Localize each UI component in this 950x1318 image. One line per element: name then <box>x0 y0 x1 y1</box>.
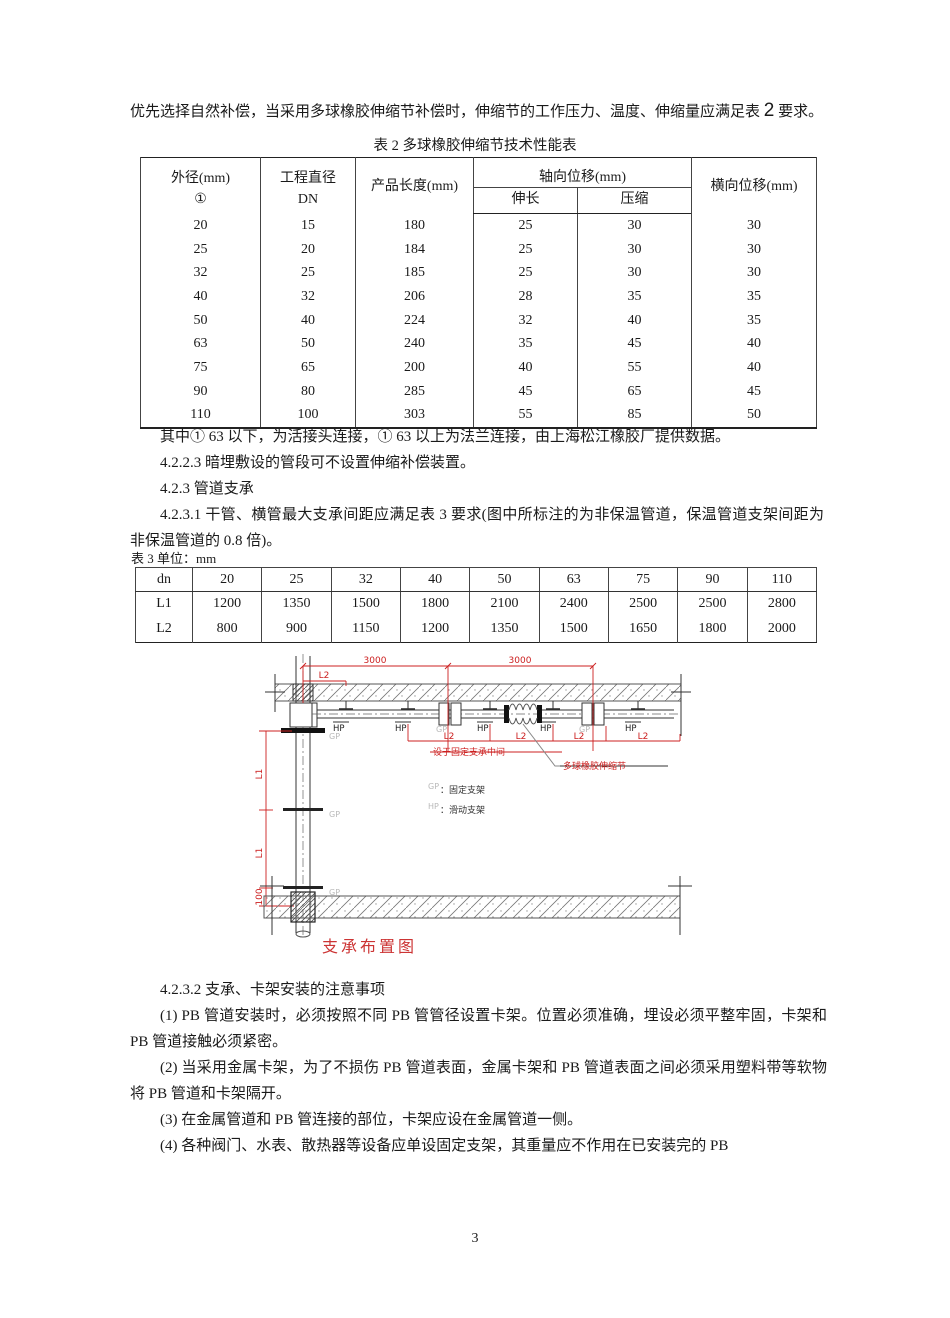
table-cell: 32 <box>261 285 356 309</box>
table-cell: 224 <box>356 309 474 333</box>
dim-l2: L2 <box>516 732 527 742</box>
table-cell: 30 <box>578 238 692 262</box>
table-cell: 28 <box>474 285 578 309</box>
table-cell: 32 <box>141 261 261 285</box>
table-row: 7565200405540 <box>141 356 817 380</box>
table2-performance: 外径(mm) ① 工程直径 DN 产品长度(mm) 轴向位移(mm) 横向位移(… <box>140 157 817 429</box>
tee-fitting <box>290 703 317 727</box>
table-cell: 40 <box>692 356 817 380</box>
table-cell: 30 <box>578 214 692 238</box>
table-cell: 40 <box>141 285 261 309</box>
legend-hp-key: HP <box>428 802 439 811</box>
legend-hp-value: ：滑动支架 <box>440 804 485 816</box>
table-cell: 200 <box>356 356 474 380</box>
dim-l2: L2 <box>574 732 585 742</box>
horizontal-pipe <box>312 710 678 718</box>
hp-label: HP <box>540 724 552 734</box>
table-cell: 90 <box>141 380 261 404</box>
dim-l2: L2 <box>638 732 649 742</box>
table2-body: 2015180253030252018425303032251852530304… <box>141 214 817 429</box>
table-cell: 2800 <box>747 592 816 617</box>
table-cell: 25 <box>474 214 578 238</box>
table-cell: 20 <box>261 238 356 262</box>
hp-label: HP <box>625 724 637 734</box>
table-row: dn2025324050637590110 <box>136 568 817 592</box>
header-project-diameter: 工程直径 DN <box>261 158 356 214</box>
table-cell: 1800 <box>678 617 747 642</box>
table-cell: 50 <box>261 332 356 356</box>
table-cell: 50 <box>470 568 539 592</box>
table-cell: 1350 <box>470 617 539 642</box>
table-cell: 63 <box>539 568 608 592</box>
table-cell: 65 <box>578 380 692 404</box>
table-cell: 2500 <box>608 592 677 617</box>
header-product-length: 产品长度(mm) <box>356 158 474 214</box>
pipe-sleeve-bottom <box>291 892 315 922</box>
table-cell: 40 <box>692 332 817 356</box>
section-4232-item4: (4) 各种阀门、水表、散热器等设备应单设固定支架，其重量应不作用在已安装完的 … <box>130 1133 827 1159</box>
section-4232-item1: (1) PB 管道安装时，必须按照不同 PB 管管径设置卡架。位置必须准确，埋设… <box>130 1003 827 1055</box>
support-layout-diagram: HP HP HP HP HP GP GP <box>250 648 695 948</box>
diagram-legend: GP ：固定支架 HP ：滑动支架 <box>428 782 485 816</box>
dim-3000-right: 3000 <box>509 656 532 666</box>
table-cell: 75 <box>608 568 677 592</box>
table-cell: 30 <box>578 261 692 285</box>
diagram-caption: 支承布置图 <box>322 933 417 957</box>
note-connection: 其中① 63 以下，为活接头连接，① 63 以上为法兰连接，由上海松江橡胶厂提供… <box>130 424 824 450</box>
table-cell: L1 <box>136 592 193 617</box>
table-cell: 35 <box>474 332 578 356</box>
table-cell: 45 <box>692 380 817 404</box>
callout-fixed-mid: 设于固定支承中间 <box>433 746 505 758</box>
table-row: 2015180253030 <box>141 214 817 238</box>
table-cell: 63 <box>141 332 261 356</box>
hp-label: HP <box>477 724 489 734</box>
table-cell: 20 <box>193 568 262 592</box>
legend-gp-key: GP <box>428 782 439 791</box>
table-row: 4032206283535 <box>141 285 817 309</box>
table2-header-row1: 外径(mm) ① 工程直径 DN 产品长度(mm) 轴向位移(mm) 横向位移(… <box>141 158 817 188</box>
table-cell: 50 <box>141 309 261 333</box>
header-outer-diameter-label: 外径(mm) <box>141 167 260 187</box>
table-cell: 40 <box>400 568 469 592</box>
table-cell: 30 <box>692 214 817 238</box>
table-cell: 2400 <box>539 592 608 617</box>
table-cell: 900 <box>262 617 331 642</box>
intro-paragraph: 优先选择自然补偿，当采用多球橡胶伸缩节补偿时，伸缩节的工作压力、温度、伸缩量应满… <box>130 98 824 125</box>
section-4231: 4.2.3.1 干管、横管最大支承间距应满足表 3 要求(图中所标注的为非保温管… <box>130 502 824 554</box>
notes-block: 其中① 63 以下，为活接头连接，① 63 以上为法兰连接，由上海松江橡胶厂提供… <box>130 424 824 554</box>
table-cell: 285 <box>356 380 474 404</box>
table-cell: 32 <box>331 568 400 592</box>
intro-text-end: 要求。 <box>774 104 823 120</box>
hp-label: HP <box>395 724 407 734</box>
table-cell: 25 <box>474 261 578 285</box>
table-cell: dn <box>136 568 193 592</box>
header-elongation: 伸长 <box>474 188 578 214</box>
table2-ref-number: 2 <box>764 100 775 121</box>
table-cell: 20 <box>141 214 261 238</box>
table-cell: 40 <box>261 309 356 333</box>
table-cell: 25 <box>262 568 331 592</box>
section-4223: 4.2.2.3 暗埋敷设的管段可不设置伸缩补偿装置。 <box>130 450 824 476</box>
table-cell: L2 <box>136 617 193 642</box>
bottom-slab <box>260 876 692 935</box>
table-cell: 1500 <box>331 592 400 617</box>
legend-gp-value: ：固定支架 <box>440 784 485 796</box>
table3-caption: 表 3 单位：mm <box>131 548 216 567</box>
header-circled-one: ① <box>141 187 260 213</box>
gp-label: GP <box>329 810 340 819</box>
table-cell: 40 <box>578 309 692 333</box>
gp-label: GP <box>329 732 340 741</box>
table-cell: 80 <box>261 380 356 404</box>
header-outer-diameter: 外径(mm) ① <box>141 158 261 214</box>
dim-l2-top: L2 <box>319 671 330 681</box>
section-4232-item3: (3) 在金属管道和 PB 管连接的部位，卡架应设在金属管道一侧。 <box>130 1107 827 1133</box>
table-cell: 1500 <box>539 617 608 642</box>
table-cell: 1150 <box>331 617 400 642</box>
table-cell: 40 <box>474 356 578 380</box>
table-cell: 2000 <box>747 617 816 642</box>
table-cell: 1800 <box>400 592 469 617</box>
table-cell: 75 <box>141 356 261 380</box>
table-cell: 65 <box>261 356 356 380</box>
table-cell: 55 <box>578 356 692 380</box>
table-cell: 35 <box>692 309 817 333</box>
header-lateral-displacement: 横向位移(mm) <box>692 158 817 214</box>
table3-support-spacing: dn2025324050637590110L112001350150018002… <box>135 567 817 643</box>
table-cell: 45 <box>578 332 692 356</box>
table-cell: 240 <box>356 332 474 356</box>
table-cell: 25 <box>141 238 261 262</box>
section-4232-item2: (2) 当采用金属卡架，为了不损伤 PB 管道表面，金属卡架和 PB 管道表面之… <box>130 1055 827 1107</box>
header-axial-displacement: 轴向位移(mm) <box>474 158 692 188</box>
table-cell: 25 <box>474 238 578 262</box>
dimension-l1 <box>259 731 294 906</box>
table-row: 2520184253030 <box>141 238 817 262</box>
table-cell: 1350 <box>262 592 331 617</box>
document-page: 优先选择自然补偿，当采用多球橡胶伸缩节补偿时，伸缩节的工作压力、温度、伸缩量应满… <box>0 0 950 1318</box>
table-row: L1120013501500180021002400250025002800 <box>136 592 817 617</box>
dim-l1: L1 <box>255 848 265 859</box>
table-cell: 206 <box>356 285 474 309</box>
dim-3000-left: 3000 <box>364 656 387 666</box>
table-cell: 110 <box>747 568 816 592</box>
section-4232-title: 4.2.3.2 支承、卡架安装的注意事项 <box>130 977 827 1003</box>
table-cell: 45 <box>474 380 578 404</box>
table-cell: 184 <box>356 238 474 262</box>
table-row: 3225185253030 <box>141 261 817 285</box>
section-423: 4.2.3 管道支承 <box>130 476 824 502</box>
table-cell: 30 <box>692 261 817 285</box>
page-number: 3 <box>0 1231 950 1247</box>
header-compression: 压缩 <box>578 188 692 214</box>
table-cell: 25 <box>261 261 356 285</box>
table-cell: 30 <box>692 238 817 262</box>
header-project-diameter-label: 工程直径 <box>261 167 355 187</box>
table-row: 5040224324035 <box>141 309 817 333</box>
table-row: L28009001150120013501500165018002000 <box>136 617 817 642</box>
header-dn-label: DN <box>261 187 355 213</box>
intro-text: 优先选择自然补偿，当采用多球橡胶伸缩节补偿时，伸缩节的工作压力、温度、伸缩量应满… <box>130 104 764 120</box>
table-cell: 15 <box>261 214 356 238</box>
table-cell: 32 <box>474 309 578 333</box>
dim-l1: L1 <box>255 769 265 780</box>
table-cell: 2500 <box>678 592 747 617</box>
table-row: 9080285456545 <box>141 380 817 404</box>
table-cell: 35 <box>692 285 817 309</box>
table3-body: dn2025324050637590110L112001350150018002… <box>136 568 817 643</box>
table-cell: 180 <box>356 214 474 238</box>
table-cell: 1200 <box>193 592 262 617</box>
table-cell: 1200 <box>400 617 469 642</box>
dim-l2: L2 <box>444 732 455 742</box>
callout-expansion-joint: 多球橡胶伸缩节 <box>563 760 626 772</box>
table-cell: 800 <box>193 617 262 642</box>
table-row: 6350240354540 <box>141 332 817 356</box>
table-cell: 185 <box>356 261 474 285</box>
table-cell: 90 <box>678 568 747 592</box>
section-4232-block: 4.2.3.2 支承、卡架安装的注意事项 (1) PB 管道安装时，必须按照不同… <box>130 977 827 1159</box>
table-cell: 35 <box>578 285 692 309</box>
table-cell: 1650 <box>608 617 677 642</box>
table-cell: 2100 <box>470 592 539 617</box>
table2-title: 表 2 多球橡胶伸缩节技术性能表 <box>130 134 820 155</box>
